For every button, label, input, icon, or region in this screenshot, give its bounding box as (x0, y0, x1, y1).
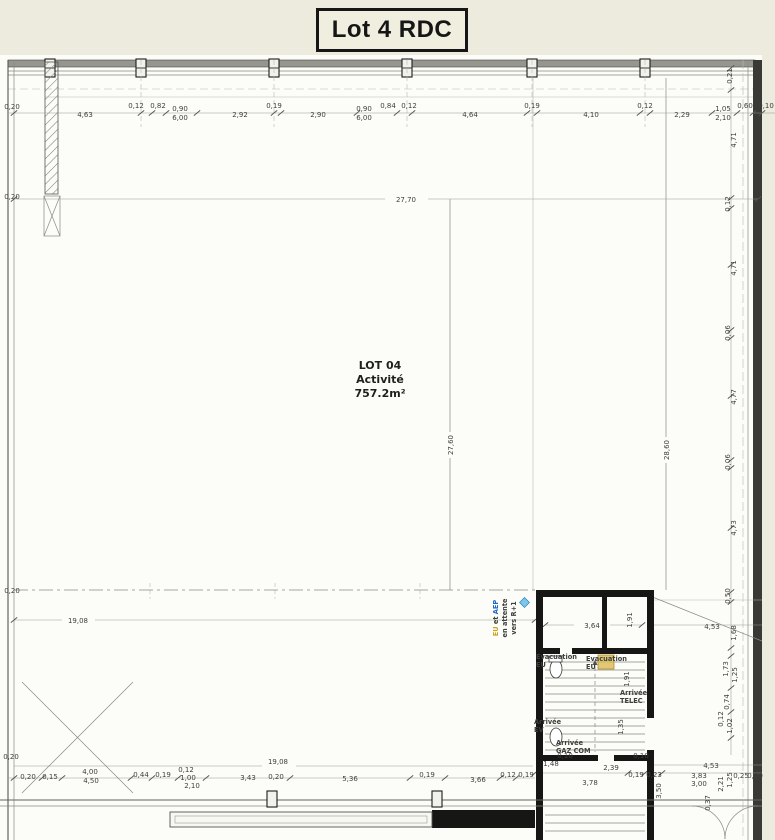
loading-dock (170, 812, 432, 827)
dim: 0,12 (637, 102, 653, 110)
dim: 0,20 (4, 193, 20, 201)
dim: 0,90 (172, 105, 188, 113)
dim: 2,10 (184, 782, 200, 790)
dim: 1,91 (623, 671, 631, 687)
dim: 0,19 (518, 771, 534, 779)
dim: 0,90 (356, 105, 372, 113)
dim: 0,60 (737, 102, 753, 110)
dim: 2,39 (603, 764, 619, 772)
dim: 0,12 (401, 102, 417, 110)
dim: 0,15 (42, 773, 58, 781)
dim: 0,44 (133, 771, 149, 779)
dim: 1,73 (722, 661, 730, 677)
riser-et: et (492, 614, 500, 626)
riser-aep: AEP (492, 600, 500, 615)
dim: 0,20 (4, 587, 20, 595)
dim: 0,12 (178, 766, 194, 774)
dim: 4,53 (704, 623, 720, 631)
svg-text:TELEC: TELEC (620, 697, 643, 705)
dim: 6,00 (356, 114, 372, 122)
dim: 0,10 (758, 102, 774, 110)
dim: 4,73 (730, 520, 738, 536)
dim: 2,92 (232, 111, 248, 119)
dim: 1,91 (626, 612, 634, 628)
dim: 0,21 (726, 68, 734, 84)
wc-fixture (550, 660, 562, 678)
svg-text:Evacuation: Evacuation (586, 655, 627, 663)
dim: 0,12 (717, 711, 725, 727)
dim: 2,90 (310, 111, 326, 119)
dim: 4,63 (77, 111, 93, 119)
dim: 1,68 (730, 625, 738, 641)
dim: 0,06 (724, 325, 732, 341)
room-area: 757.2m² (354, 387, 405, 400)
dim: 3,66 (470, 776, 486, 784)
svg-text:EV: EV (534, 726, 545, 734)
dim: 2,21 (717, 776, 725, 792)
plan-paper (0, 55, 762, 840)
dim: 0,20 (3, 753, 19, 761)
riser-line3: vers R+1 (510, 601, 518, 635)
dim: 0,19 (155, 771, 171, 779)
dim: 0,74 (723, 694, 731, 710)
svg-text:Arrivée: Arrivée (620, 689, 648, 697)
dim: 0,06 (724, 454, 732, 470)
dim: 4,77 (730, 389, 738, 405)
dim: 0,23 (646, 771, 662, 779)
dim: 0,19 (628, 771, 644, 779)
dim: 3,43 (240, 774, 256, 782)
room-name: LOT 04 (359, 359, 402, 372)
dim: 1,25 (731, 667, 739, 683)
dim: 3,64 (584, 622, 600, 630)
dim: 2,10 (715, 114, 731, 122)
dim: 4,50 (83, 777, 99, 785)
svg-text:Arrivée: Arrivée (556, 739, 584, 747)
dim: 4,64 (462, 111, 478, 119)
dim: 1,05 (715, 105, 731, 113)
dim: 4,71 (730, 260, 738, 276)
dim: 3,00 (691, 780, 707, 788)
svg-text:EU et AEP: EU et AEP (492, 600, 500, 637)
dim: 0,82 (150, 102, 166, 110)
dim: 4,10 (583, 111, 599, 119)
dim: 5,36 (342, 775, 358, 783)
svg-text:EU: EU (536, 661, 546, 669)
dim: 3,50 (655, 783, 663, 799)
dim: 0,12 (500, 771, 516, 779)
riser-eu: EU (492, 626, 500, 636)
dim: 1,35 (617, 719, 625, 735)
svg-text:GAZ COM: GAZ COM (556, 747, 591, 755)
dim: 0,20 (4, 103, 20, 111)
dim: 3,83 (691, 772, 707, 780)
dim: 0,50 (724, 588, 732, 604)
floor-plan-canvas: LOT 04 Activité 757.2m² 0,20 0,20 0,20 0… (0, 0, 775, 840)
dim: 0,84 (380, 102, 396, 110)
dim: 3,78 (582, 779, 598, 787)
dim: 2,29 (674, 111, 690, 119)
dim: 0,19 (524, 102, 540, 110)
dim: 0,12 (724, 196, 732, 212)
riser-note: EU et AEP en attente vers R+1 (492, 598, 518, 638)
svg-text:EU: EU (586, 663, 596, 671)
dim: 4,71 (730, 132, 738, 148)
room-label: LOT 04 Activité 757.2m² (354, 359, 405, 400)
room-use: Activité (356, 373, 404, 386)
dim: 1,48 (543, 760, 559, 768)
svg-text:Evacuation: Evacuation (536, 653, 577, 661)
dim: 0,10 (633, 752, 649, 760)
dim: 19,08 (68, 617, 88, 625)
dim: 0,19 (419, 771, 435, 779)
dim: 0,20 (20, 773, 36, 781)
dim: 28,60 (663, 440, 671, 460)
dim: 27,60 (447, 435, 455, 455)
dim: 19,08 (268, 758, 288, 766)
dim: 1,02 (726, 718, 734, 734)
svg-text:Arrivée: Arrivée (534, 718, 562, 726)
dim: 0,19 (266, 102, 282, 110)
dim: 1,00 (180, 774, 196, 782)
dim: 0,37 (704, 795, 712, 811)
dim: 4,53 (703, 762, 719, 770)
dim: 0,20 (268, 773, 284, 781)
dim: 0,20 (747, 772, 763, 780)
riser-line2: en attente (501, 598, 509, 638)
dim: 0,12 (128, 102, 144, 110)
dim: 6,00 (172, 114, 188, 122)
dim: 4,00 (82, 768, 98, 776)
dim: 27,70 (396, 196, 416, 204)
